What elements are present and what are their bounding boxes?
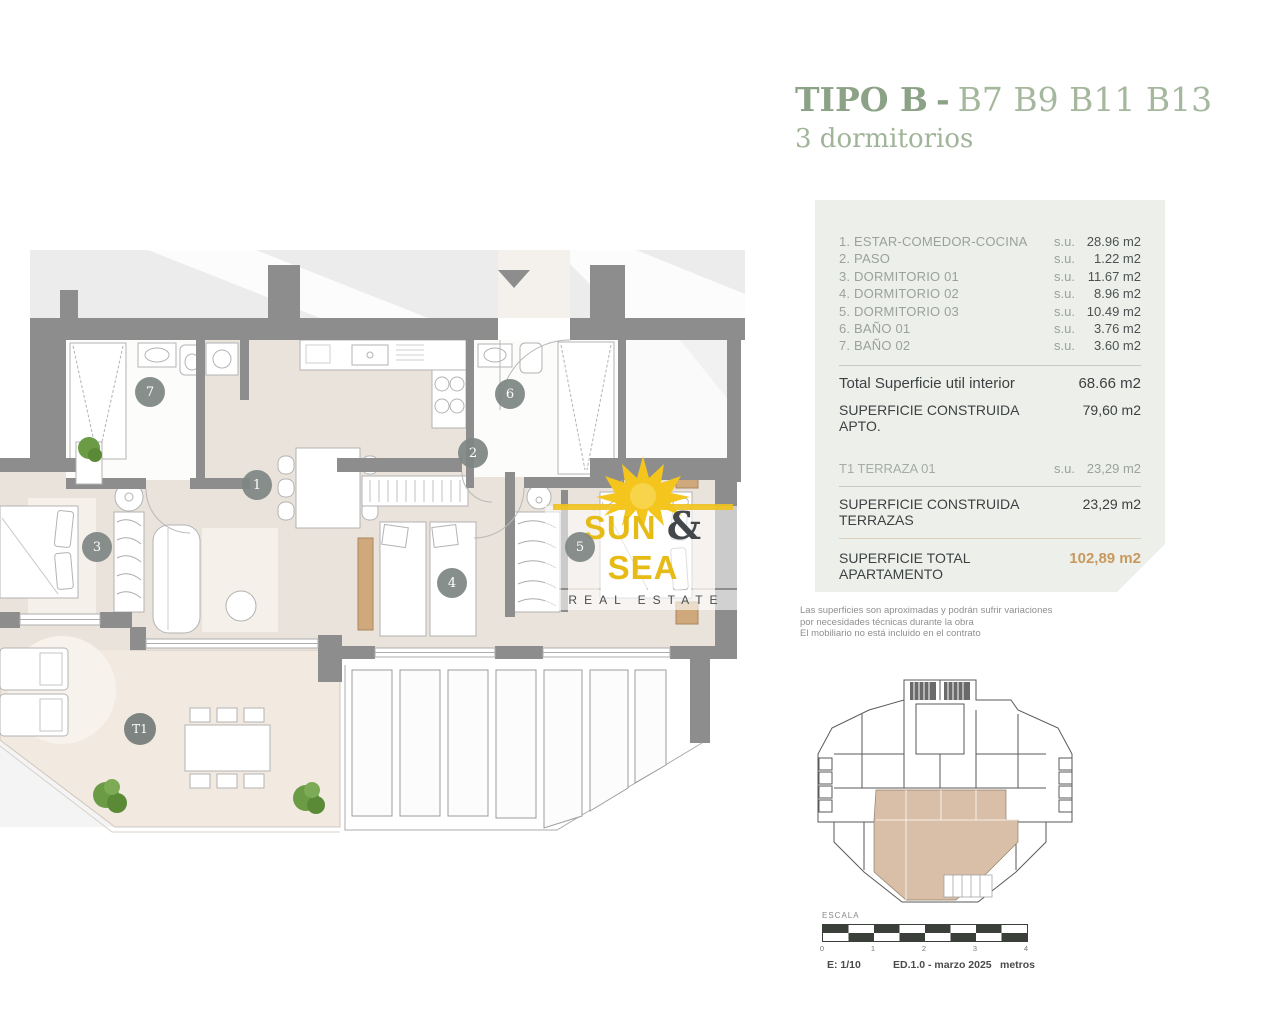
surface-rows: 1. ESTAR-COMEDOR-COCINAs.u.28.96 m2 2. P… xyxy=(839,233,1141,355)
scale-label: ESCALA xyxy=(822,911,860,920)
logo-watermark: SUN & SEA REAL ESTATE xyxy=(545,452,741,610)
total-value: 102,89 m2 xyxy=(1069,550,1141,582)
total-apartamento-row: SUPERFICIE TOTAL APARTAMENTO102,89 m2 xyxy=(839,550,1141,582)
room-badge-living: 1 xyxy=(242,470,272,500)
room-badge-paso: 2 xyxy=(458,438,488,468)
edition-date: ED.1.0 - marzo 2025 xyxy=(893,959,992,971)
surface-row: 2. PASOs.u.1.22 m2 xyxy=(839,250,1141,267)
disclaimer-line: El mobiliario no está incluido en el con… xyxy=(800,628,1052,640)
divider xyxy=(839,365,1141,366)
louver-panels xyxy=(345,665,702,830)
scale-bar-row xyxy=(823,933,1027,941)
scale-tick: 3 xyxy=(970,944,980,953)
scale-ratio: E: 1/10 xyxy=(827,959,861,971)
disclaimer-line: Las superficies son aproximadas y podrán… xyxy=(800,605,1052,617)
surface-row: 6. BAÑO 01s.u.3.76 m2 xyxy=(839,320,1141,337)
page-subtitle: 3 dormitorios xyxy=(795,124,1212,154)
disclaimer-line: por necesidades técnicas durante la obra xyxy=(800,617,1052,629)
scale-units: metros xyxy=(1000,959,1035,971)
surface-row: 7. BAÑO 02s.u.3.60 m2 xyxy=(839,337,1141,354)
total-util-row: Total Superficie util interior68.66 m2 xyxy=(839,375,1141,392)
terrace-badge: T1 xyxy=(124,713,156,745)
building-key-plan xyxy=(806,670,1086,910)
surface-row: 3. DORMITORIO 01s.u.11.67 m2 xyxy=(839,268,1141,285)
divider xyxy=(839,486,1141,487)
scale-bar xyxy=(822,924,1028,942)
surface-row: 4. DORMITORIO 02s.u.8.96 m2 xyxy=(839,285,1141,302)
scale-tick: 2 xyxy=(919,944,929,953)
surface-panel: 1. ESTAR-COMEDOR-COCINAs.u.28.96 m2 2. P… xyxy=(815,200,1165,592)
scale-bar-row xyxy=(823,925,1027,933)
surface-row: 1. ESTAR-COMEDOR-COCINAs.u.28.96 m2 xyxy=(839,233,1141,250)
page: 1 2 3 4 5 6 7 T1 SUN & SEA REAL ESTATE T… xyxy=(0,0,1280,1024)
scale-tick: 1 xyxy=(868,944,878,953)
scale-tick: 0 xyxy=(817,944,827,953)
divider xyxy=(839,538,1141,539)
surface-row: 5. DORMITORIO 03s.u.10.49 m2 xyxy=(839,303,1141,320)
title-block: TIPO B-B7 B9 B11 B13 3 dormitorios xyxy=(795,82,1212,154)
room-badge-dormitorio-02: 4 xyxy=(437,568,467,598)
disclaimer: Las superficies son aproximadas y podrán… xyxy=(800,605,1052,640)
room-badge-dormitorio-01: 3 xyxy=(82,532,112,562)
terraza-row: T1 TERRAZA 01s.u.23,29 m2 xyxy=(839,461,1141,476)
scale-tick: 4 xyxy=(1021,944,1031,953)
page-title: TIPO B-B7 B9 B11 B13 xyxy=(795,82,1212,118)
room-badge-bano-01: 6 xyxy=(495,379,525,409)
construida-terrazas-row: SUPERFICIE CONSTRUIDA TERRAZAS23,29 m2 xyxy=(839,496,1141,528)
room-badge-dormitorio-03: 5 xyxy=(565,532,595,562)
construida-apto-row: SUPERFICIE CONSTRUIDA APTO.79,60 m2 xyxy=(839,402,1141,434)
room-badge-bano-02: 7 xyxy=(135,377,165,407)
logo-tagline: REAL ESTATE xyxy=(545,590,741,610)
ampersand: & xyxy=(667,503,702,548)
